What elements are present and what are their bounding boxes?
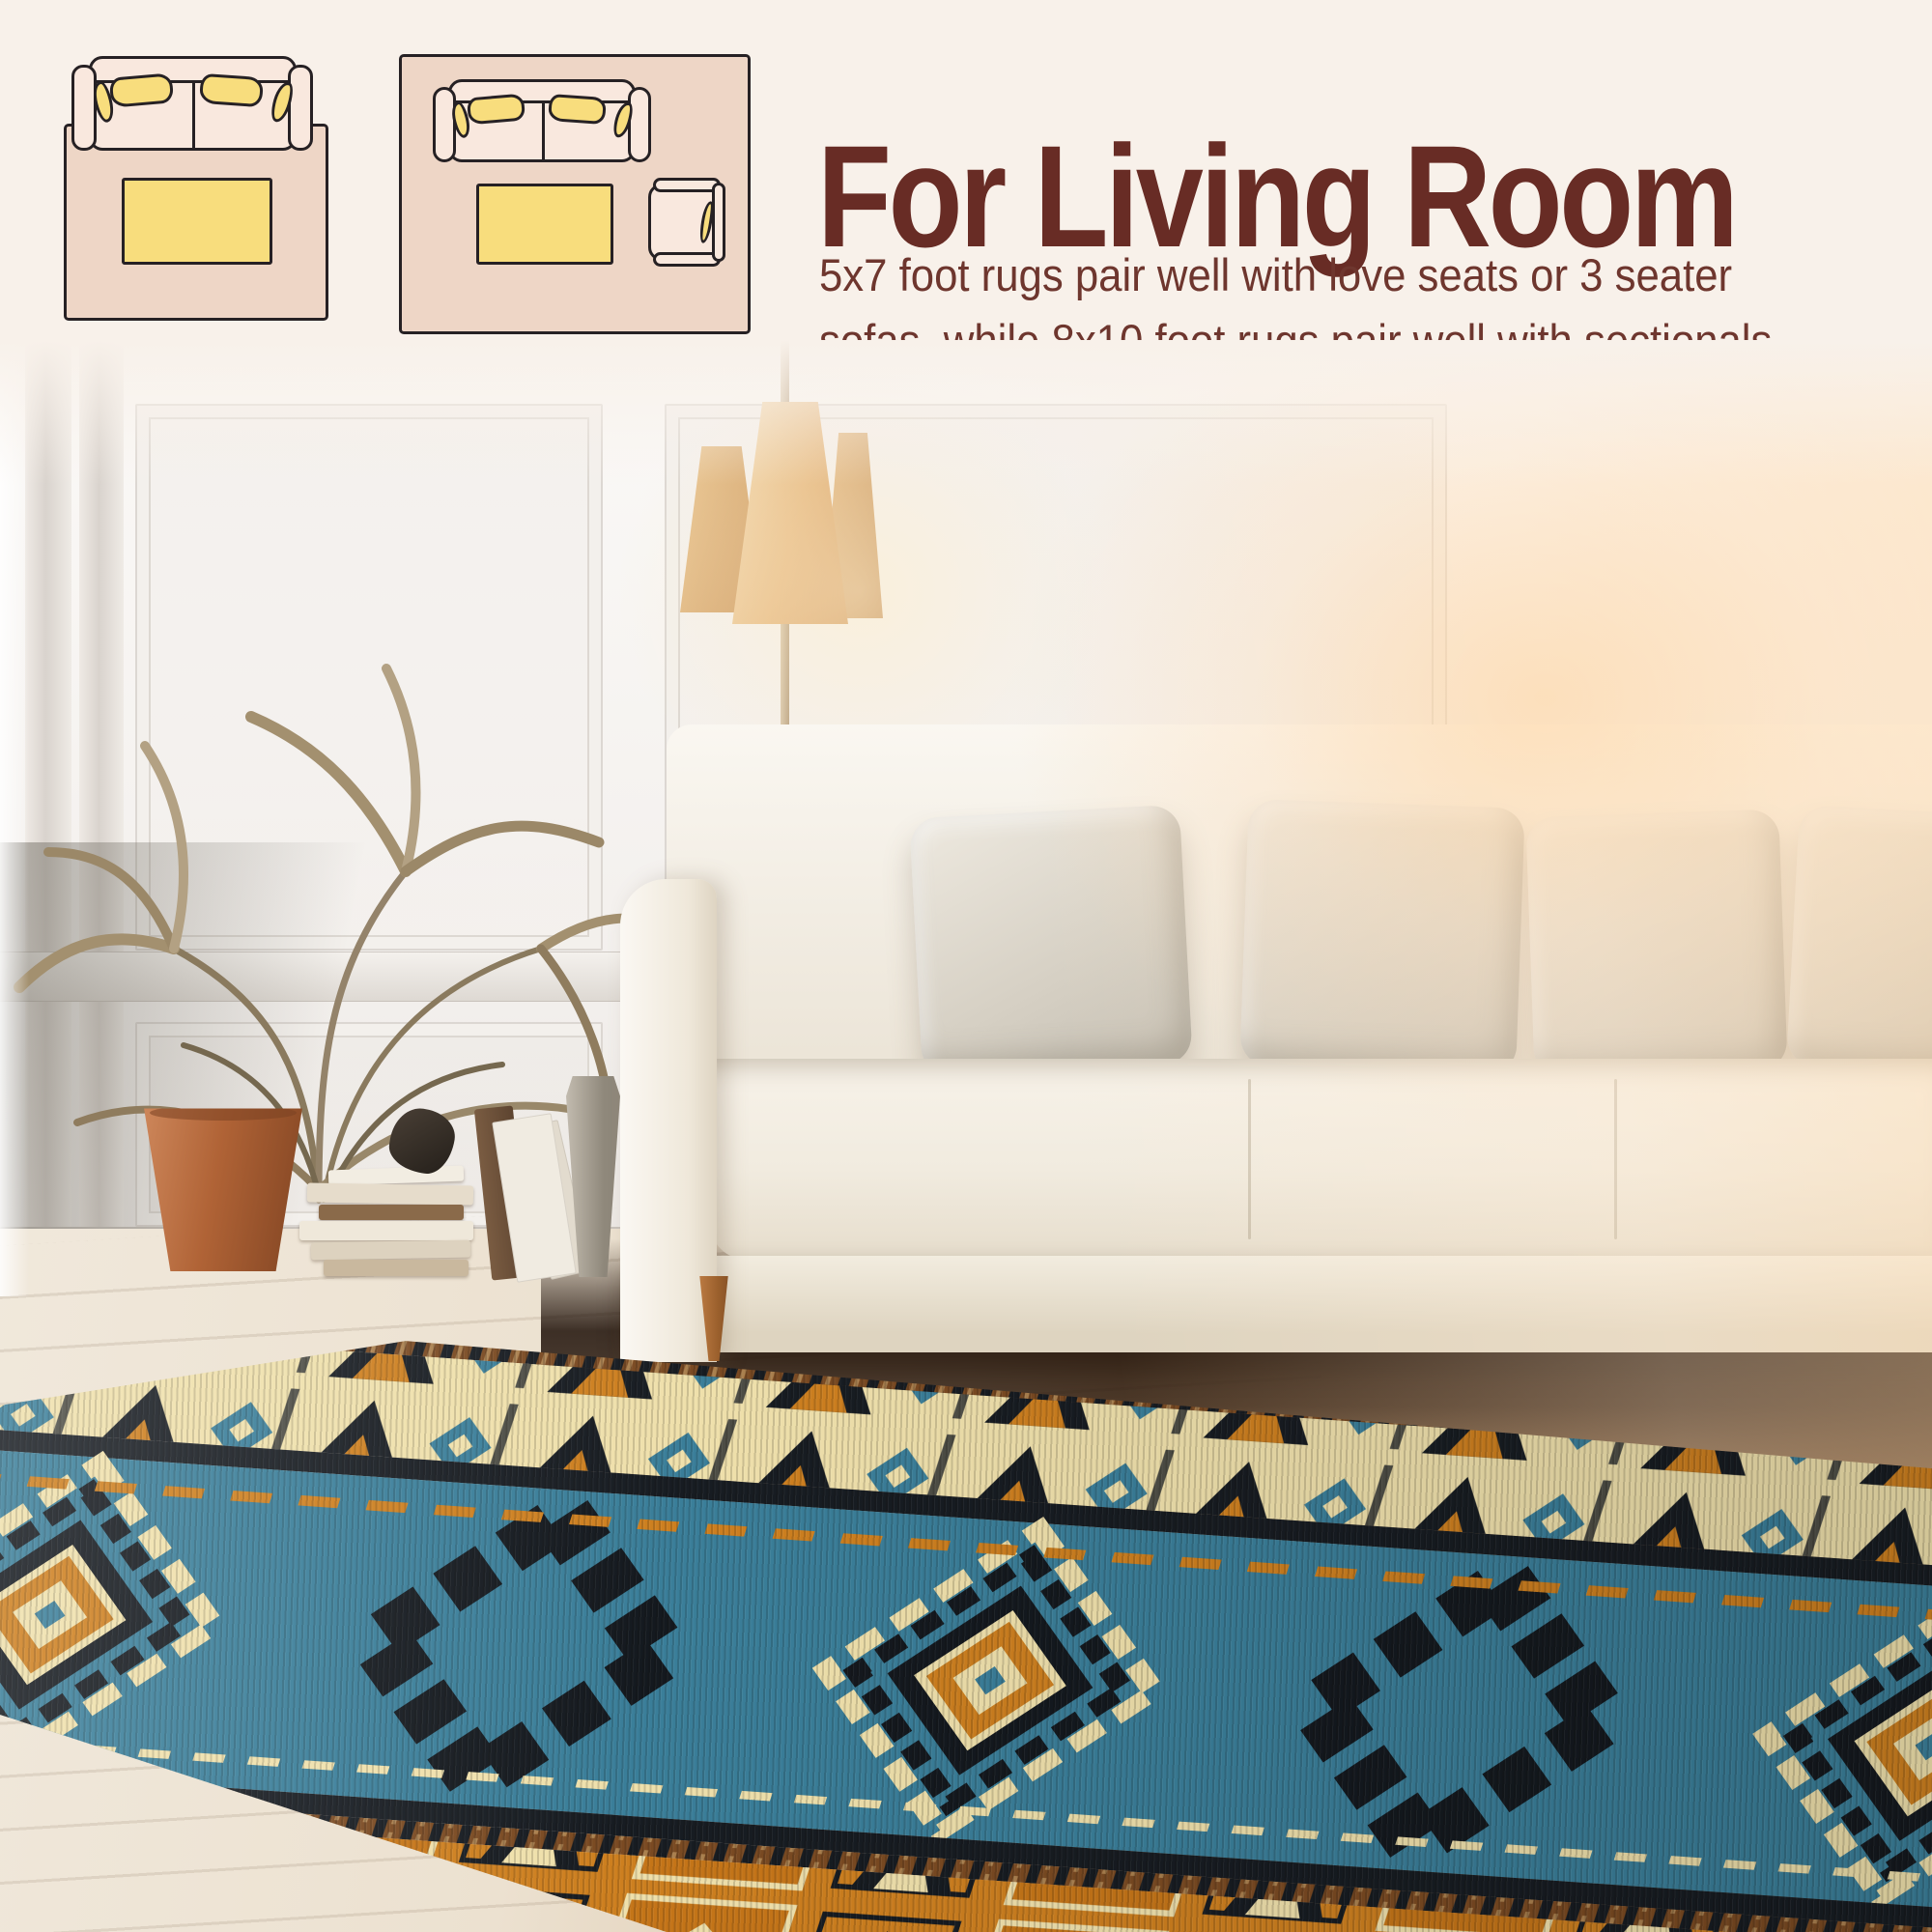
book	[311, 1240, 470, 1261]
sofa-top-view-icon	[433, 79, 651, 162]
back-pillow-icon	[467, 94, 526, 126]
sofa-arm-right	[628, 87, 651, 162]
rug-product-infographic: For Living Room 5x7 foot rugs pair well …	[0, 0, 1932, 1932]
rug-size-diagram-5x7: 5x7	[37, 35, 328, 379]
sofa-seat-divider	[542, 100, 545, 159]
sofa-arm-left	[433, 87, 456, 162]
book	[319, 1205, 464, 1220]
coffee-table-icon	[122, 178, 272, 265]
back-pillow-icon	[548, 94, 607, 125]
seat-seam	[1614, 1079, 1617, 1239]
coffee-table-icon	[476, 184, 613, 265]
sofa-arm-right	[288, 65, 313, 151]
armchair-arm-bottom	[653, 252, 721, 267]
subtitle-line-1: 5x7 foot rugs pair well with love seats …	[819, 249, 1732, 300]
seat-seam	[1248, 1079, 1251, 1239]
throw-pillow	[1786, 805, 1932, 1075]
throw-pillow	[1239, 799, 1524, 1075]
book	[299, 1221, 473, 1240]
throw-pillow	[1525, 810, 1787, 1079]
sofa-seat-cushion	[710, 1059, 1932, 1260]
back-pillow-icon	[109, 72, 174, 108]
loveseat-top-view-icon	[71, 56, 313, 151]
book	[324, 1260, 469, 1276]
armchair-arm-top	[653, 178, 721, 192]
armchair-back	[712, 183, 725, 263]
living-room-photo	[0, 340, 1932, 1932]
sofa-base-frame	[626, 1256, 1932, 1352]
back-pillow-icon	[198, 72, 263, 107]
rug-size-diagram-8x10: 8x10	[394, 43, 753, 390]
throw-pillow	[909, 805, 1193, 1077]
sofa-arm-left	[71, 65, 97, 151]
armchair-top-view-icon	[648, 178, 725, 267]
sofa-seat-divider	[192, 80, 195, 148]
book	[307, 1183, 473, 1206]
